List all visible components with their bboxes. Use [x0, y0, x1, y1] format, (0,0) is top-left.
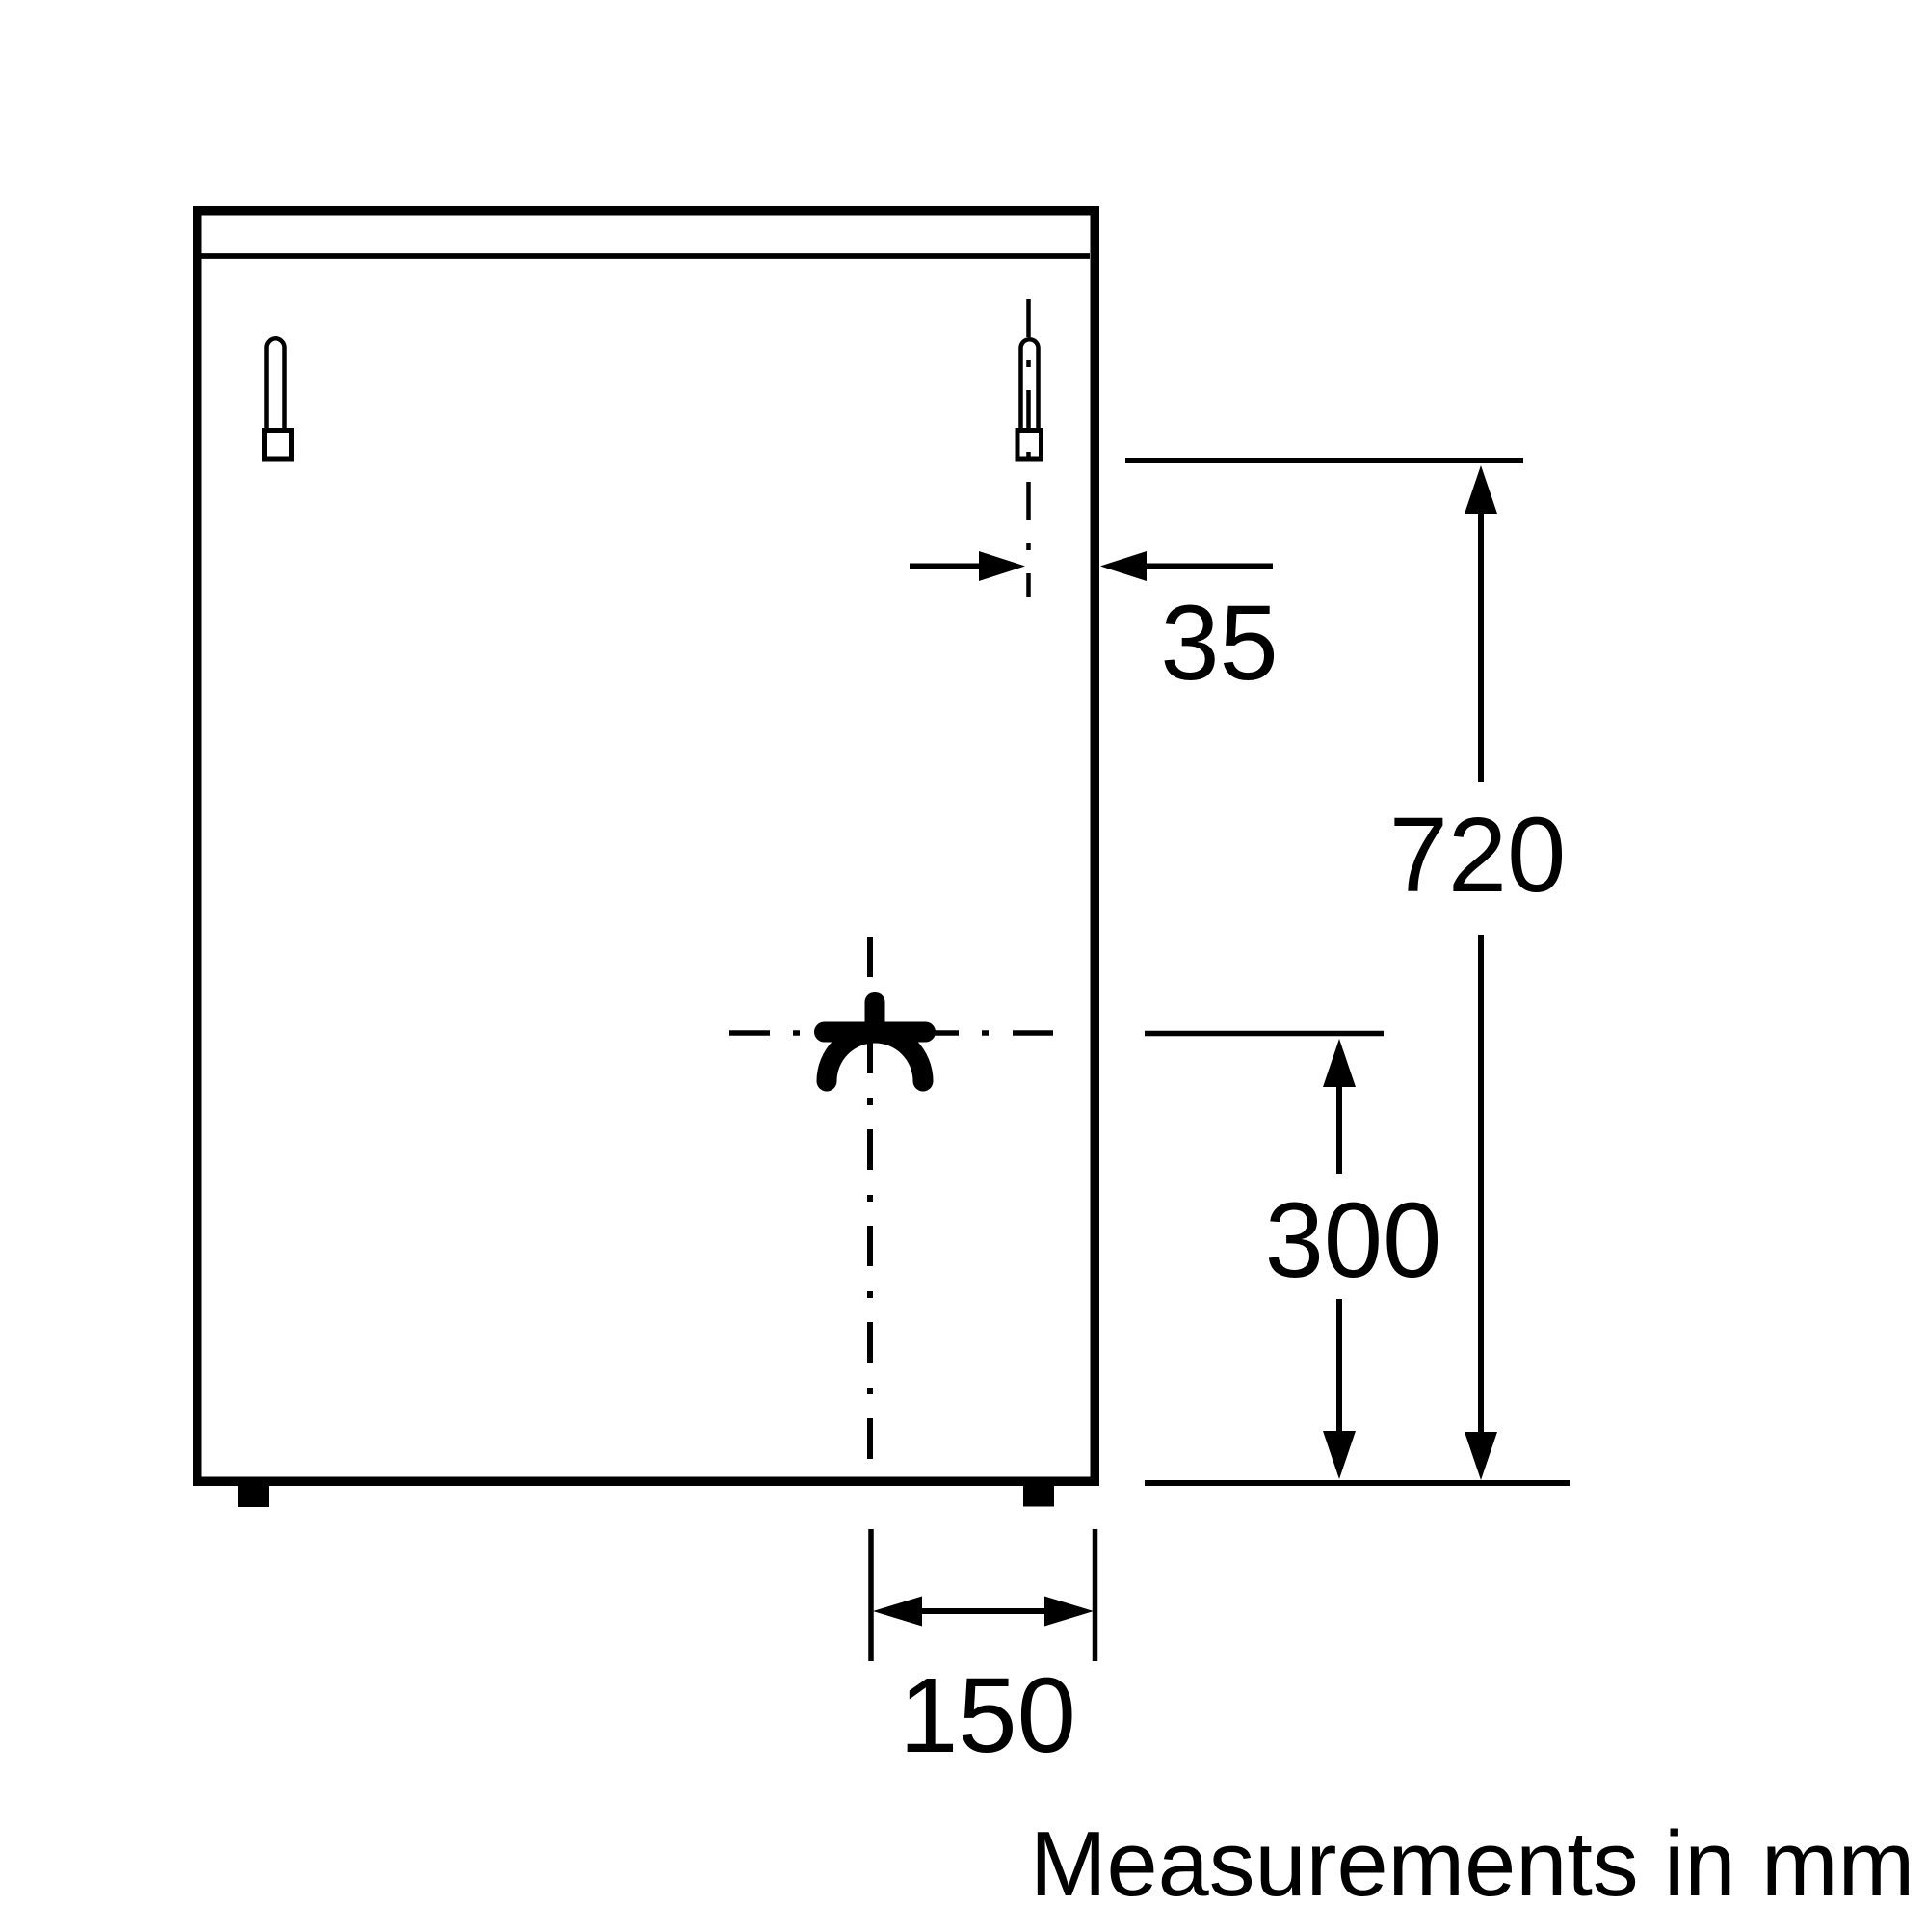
svg-text:35: 35	[1160, 584, 1278, 702]
svg-text:Measurements in mm: Measurements in mm	[1030, 1813, 1914, 1916]
svg-text:300: 300	[1265, 1181, 1442, 1300]
svg-text:150: 150	[899, 1656, 1076, 1775]
svg-text:720: 720	[1389, 796, 1567, 914]
